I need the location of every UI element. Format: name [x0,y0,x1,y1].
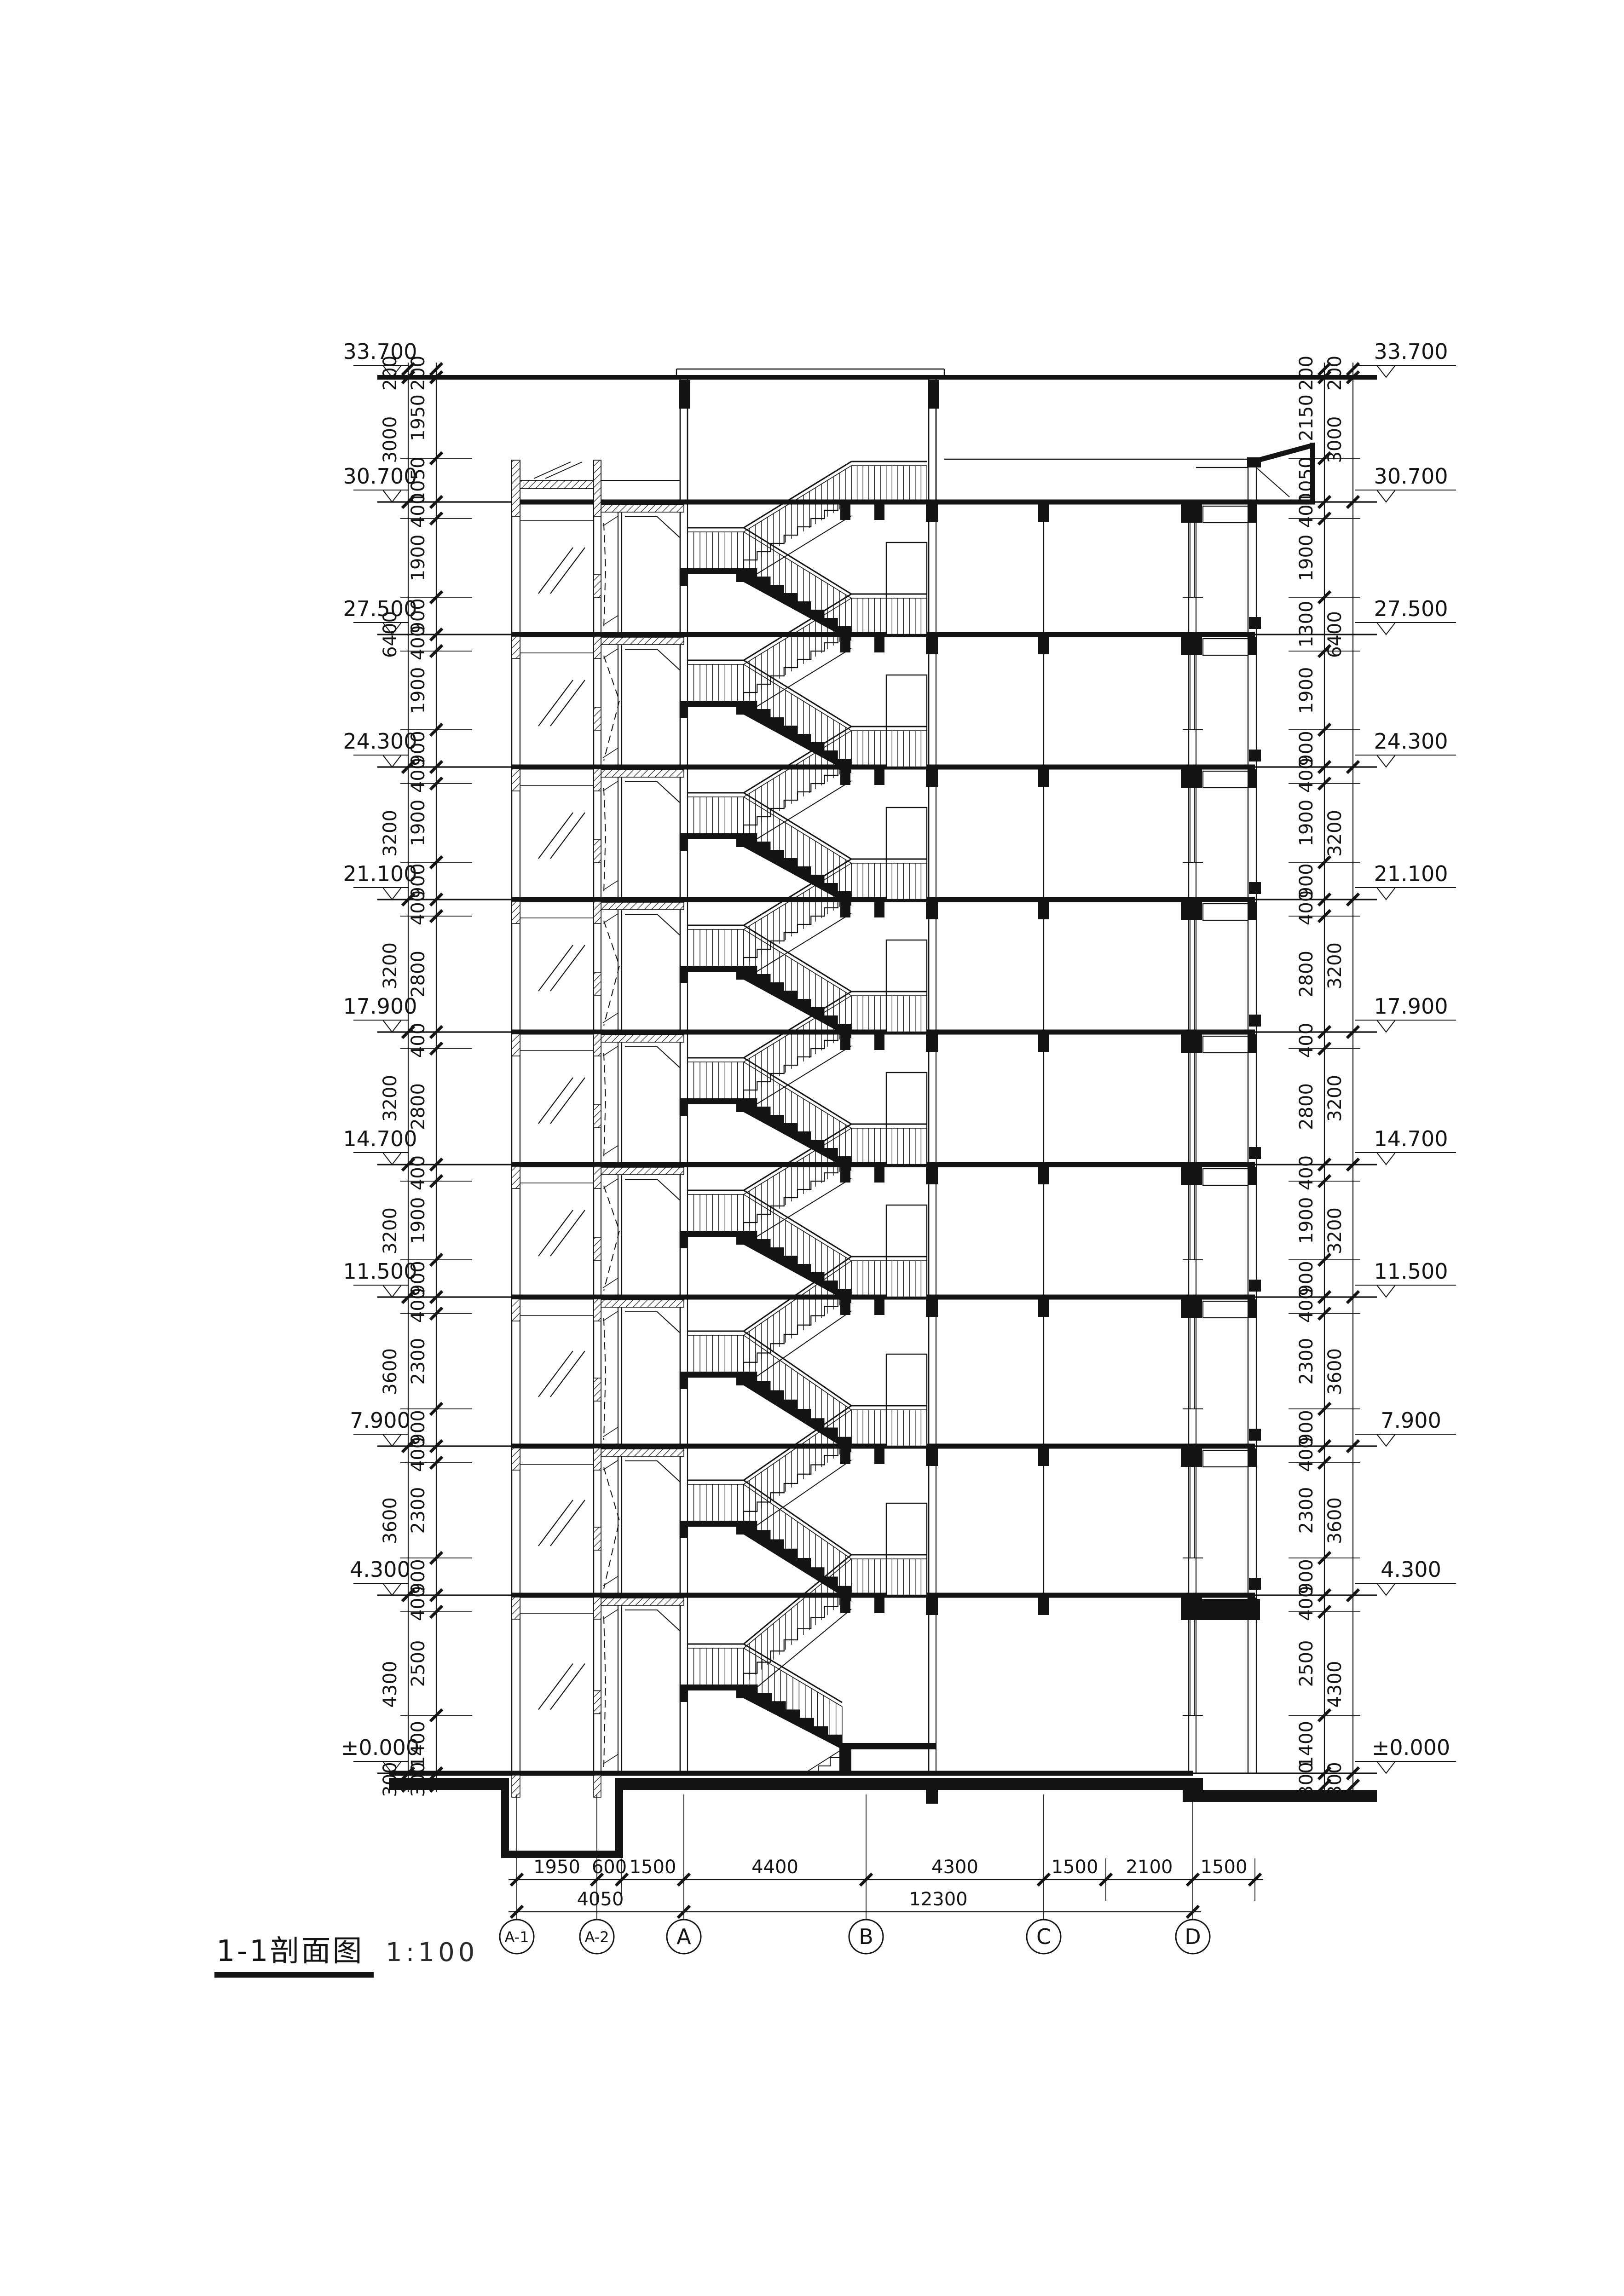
glass-mark [603,516,618,526]
spandrel-hatch [594,1166,601,1188]
spandrel-hatch [512,1166,520,1188]
bulkhead-column [928,380,939,409]
landing-slab-hatch [601,770,684,777]
elevation-label: 33.700 [1374,339,1448,364]
dim-label: 1900 [408,535,429,582]
spandrel-hatch [512,1597,520,1619]
dim-label: 1900 [1296,535,1317,582]
dim-label: 1500 [1201,1857,1248,1878]
mid-landing [680,1231,744,1237]
dim-label: 3200 [1324,1207,1346,1254]
wall-pier [926,504,938,522]
elevation-label: 7.900 [1381,1408,1441,1433]
landing-slab-hatch [601,1167,684,1175]
pit-wall [615,1778,623,1858]
elevation-label: 24.300 [343,729,417,754]
elevation-label: 17.900 [1374,994,1448,1019]
grid-bubble-label: A-2 [584,1928,609,1946]
mid-landing [680,568,744,574]
spandrel-hatch [512,901,520,923]
dim-label: 1900 [408,667,429,714]
dim-label: 400 [408,1155,429,1190]
title-underline [214,1972,374,1978]
elevation-label: 4.300 [1381,1557,1441,1582]
glass-mark [534,462,571,479]
parapet-stub [1249,882,1261,894]
glass-mark [603,1460,618,1470]
spandrel-hatch [594,1237,601,1260]
landing-beam [736,1372,744,1385]
balcony-slab-edge [1203,506,1248,523]
landing-beam [680,966,688,983]
flight-soffit [625,1461,680,1482]
balcony-slab-edge [1203,639,1248,655]
elevator-door-dash [604,1318,606,1440]
edge-lintel [1248,504,1257,523]
dim-label: 2500 [1296,1640,1317,1687]
dim-label: 1950 [533,1857,580,1878]
elevation-triangle [1377,365,1395,377]
edge-lintel [1248,637,1257,655]
beam-stub [874,769,884,785]
glass-mark [603,748,618,758]
parapet-stub [1249,1147,1261,1159]
dim-label: 400 [408,1437,429,1472]
glass-mark [603,781,618,791]
dim-label: 2800 [1296,951,1317,998]
beam-stub [874,1598,884,1613]
spandrel-hatch [594,1105,601,1128]
elevation-label: ±0.000 [341,1735,419,1760]
landing-beam [736,1231,744,1245]
dim-label: 1500 [1052,1857,1098,1878]
landing-beam [736,1098,744,1112]
elevation-triangle [1377,1020,1395,1032]
spandrel-hatch [594,972,601,995]
dim-label: 400 [408,1586,429,1621]
beam-stub [874,637,884,652]
elevator-door-dash [604,921,619,1026]
dim-label: 1900 [408,1197,429,1244]
elevator-door-dash [604,523,606,628]
dim-label: 400 [1296,890,1317,925]
wall-pier [926,1598,938,1615]
landing-slab-hatch [601,1035,684,1042]
window-lintel [1181,1448,1202,1467]
flight-soffit [625,1047,680,1068]
edge-lintel [1248,1448,1257,1467]
beam-stub [1038,1299,1049,1317]
elevation-label: 14.700 [1374,1126,1448,1151]
elevation-label: 30.700 [343,464,417,489]
elevation-triangle [383,888,401,900]
beam-stub [1038,1598,1049,1615]
grid-bubble-label: A-1 [504,1928,529,1946]
window-lintel [1181,902,1202,920]
spandrel-hatch [512,1034,520,1056]
landing-beam [680,1231,688,1248]
flight-soffit [625,517,680,538]
spandrel-hatch [594,901,601,923]
grid-bubble-label: A [676,1924,691,1949]
elevation-label: 27.500 [343,596,417,621]
landing-beam [680,701,688,718]
elevator-door-dash [604,1186,619,1291]
shaft-cap-wall [594,460,601,516]
grid-bubble-label: B [859,1924,873,1949]
wall-pier [926,769,938,787]
beam-stub [874,1448,884,1464]
elevation-label: 27.500 [1374,596,1448,621]
elevation-label: 7.900 [350,1408,410,1433]
flight-soffit [625,649,680,670]
beam-stub [874,1034,884,1050]
title-block: 1-1剖面图 1:100 [214,1934,478,1978]
flight-soffit [625,1610,680,1631]
elevation-triangle [1377,888,1395,900]
dim-label: 400 [408,1288,429,1323]
landing-slab-hatch [601,1449,684,1456]
edge-lintel [1248,902,1257,920]
elevation-label: 4.300 [350,1557,410,1582]
dim-label: 3200 [1324,1075,1346,1122]
balcony-slab-edge [1203,1450,1248,1467]
dim-label: 2800 [1296,1083,1317,1130]
dim-label: 300 [1296,1762,1317,1797]
parapet-stub [1249,750,1261,761]
dim-label: 4300 [931,1857,978,1878]
window-lintel [1181,504,1202,523]
dim-label: 300 [408,1762,429,1797]
elevator-door-dash [604,1467,619,1589]
spandrel-hatch [594,707,601,730]
elevation-triangle [1377,1583,1395,1595]
glass-mark [603,1311,618,1321]
dim-label: 2500 [408,1640,429,1687]
window-lintel [1181,1034,1202,1053]
flight-soffit [625,914,680,935]
elevator-door-dash [604,1053,606,1158]
dim-label: 200 [1296,356,1317,391]
shaft-cap-slab [520,480,594,489]
balcony-slab-edge [1203,1301,1248,1318]
flight-soffit [625,1312,680,1333]
mid-landing [680,833,744,839]
dim-label: 3200 [380,810,401,857]
spandrel-hatch [594,1775,601,1797]
landing-beam [680,568,688,586]
elevation-label: 33.700 [343,339,417,364]
spandrel-hatch [594,1691,601,1714]
window-lintel [1181,1299,1202,1318]
elevation-label: 30.700 [1374,464,1448,489]
mid-landing [680,701,744,707]
glass-mark [603,1754,618,1764]
mid-landing [680,966,744,972]
parapet-corner [1247,457,1261,467]
parapet-stub [1249,1429,1261,1441]
elevation-triangle [383,1020,401,1032]
spandrel-hatch [594,1527,601,1550]
elevation-triangle [1377,1434,1395,1446]
spandrel-hatch [594,1034,601,1056]
glass-mark [603,615,618,625]
dim-label: 3000 [1324,416,1346,463]
dim-label: 400 [1296,1023,1317,1058]
balcony-slab-edge [1203,771,1248,788]
beam-stub [1038,1448,1049,1466]
dim-label: 3600 [380,1497,401,1544]
beam-stub [874,1167,884,1183]
dimension-chains: 2003000640032003200320032003600360043003… [380,356,1360,1918]
dim-label: 1950 [408,394,429,441]
landing-slab-hatch [601,1598,684,1605]
grid-bubble-label: D [1185,1924,1201,1949]
landing-beam [736,1521,744,1535]
dim-label: 1900 [1296,1197,1317,1244]
glass-mark [603,1427,618,1437]
flight-soffit [625,1179,680,1200]
beam-stub [874,1299,884,1315]
canopy-inner [1257,468,1289,497]
dim-label: 2300 [1296,1338,1317,1385]
glass-mark [545,462,582,479]
dim-label: 3200 [1324,942,1346,989]
glass-mark [603,648,618,658]
landing-beam [680,1372,688,1389]
elevation-triangle [383,1434,401,1446]
dim-label: 1300 [1296,601,1317,648]
shaft-cap-wall [512,460,520,516]
edge-lintel [1248,769,1257,788]
elevation-triangle [383,490,401,502]
step-diagonal [804,1748,845,1773]
landing-beam [736,568,744,582]
dim-label: 1500 [630,1857,676,1878]
drawing-title: 1-1剖面图 [216,1934,364,1968]
building-linework [377,369,1377,1858]
parapet-stub [1249,1578,1261,1590]
dim-label: 3200 [1324,810,1346,857]
pit-wall [501,1778,509,1858]
landing-beam [680,1521,688,1538]
landing-slab-hatch [601,902,684,910]
landing-beam [680,1685,688,1702]
spandrel-hatch [594,636,601,658]
parapet-stub [1249,1015,1261,1027]
entry-platform [842,1743,936,1749]
elevation-triangle [383,1153,401,1165]
mid-landing [680,1098,744,1104]
grid-bubble-label: C [1036,1924,1051,1949]
entrance-canopy [1181,1599,1260,1620]
dim-label: 3600 [1324,1348,1346,1395]
landing-beam [736,833,744,847]
spandrel-hatch [594,1597,601,1619]
dim-label: 3600 [380,1348,401,1395]
wall-pier [926,902,938,919]
glass-mark [603,1046,618,1056]
glass-mark [603,1013,618,1023]
dim-label: 2300 [408,1338,429,1385]
ground-slab [615,1778,1193,1790]
dim-label: 3600 [1324,1497,1346,1544]
dim-label: 4300 [1324,1661,1346,1708]
spandrel-hatch [594,1448,601,1470]
beam-stub [1038,1034,1049,1052]
dim-label: 3200 [380,1207,401,1254]
elevator-door-dash [604,656,619,761]
dim-label: 3000 [380,416,401,463]
spandrel-hatch [594,575,601,598]
dim-label: 400 [1296,1437,1317,1472]
spandrel-hatch [512,1448,520,1470]
dim-label: 300 [380,1762,401,1797]
dim-label: 1900 [408,800,429,847]
elevation-label: 11.500 [343,1259,417,1284]
landing-slab-hatch [601,1300,684,1307]
balcony-slab-edge [1203,1169,1248,1185]
dim-label: 2800 [408,1083,429,1130]
wall-pier [926,637,938,654]
dim-label: 2300 [1296,1487,1317,1534]
dim-label: 2150 [1296,394,1317,441]
elevation-triangle [1377,490,1395,502]
landing-slab-hatch [601,505,684,512]
dim-label: 300 [1324,1762,1346,1797]
landing-beam [736,966,744,980]
glass-mark [603,880,618,890]
elevation-label: 24.300 [1374,729,1448,754]
spandrel-hatch [594,769,601,791]
dim-label: 1400 [1296,1721,1317,1768]
dim-label: 400 [1296,493,1317,528]
dim-label: 400 [1296,1155,1317,1190]
elevation-label: ±0.000 [1372,1735,1450,1760]
dim-label: 400 [1296,1288,1317,1323]
mid-landing [680,1685,744,1690]
landing-beam [736,701,744,715]
dim-label: 3200 [380,942,401,989]
dim-label: 4400 [751,1857,798,1878]
spandrel-hatch [594,840,601,863]
bulkhead-column [679,380,690,409]
edge-lintel [1248,1034,1257,1053]
elevation-triangle [1377,1153,1395,1165]
mid-landing [680,1521,744,1527]
elevation-triangle [1377,1761,1395,1773]
spandrel-hatch [512,1775,520,1797]
dim-label: 400 [408,890,429,925]
dim-label: 400 [1296,1586,1317,1621]
dim-label: 400 [408,625,429,660]
beam-stub [1038,902,1049,919]
building-section-drawing: 2003000640032003200320032003600360043003… [0,0,1624,2296]
elevation-triangle [383,1285,401,1297]
glass-mark [603,1278,618,1288]
edge-lintel [1248,1299,1257,1318]
spandrel-hatch [594,1378,601,1401]
dim-label: 400 [1296,758,1317,793]
spandrel-hatch [512,1299,520,1321]
dim-label: 400 [408,1023,429,1058]
elevation-triangle [383,755,401,767]
dim-label: 6400 [1324,611,1346,658]
dim-label: 400 [408,493,429,528]
dim-label: 12300 [909,1889,967,1910]
elevation-label: 11.500 [1374,1259,1448,1284]
glass-mark [603,913,618,923]
glass-mark [603,1145,618,1155]
elevation-label: 21.100 [343,861,417,886]
beam-stub [874,902,884,917]
dim-label: 2800 [408,951,429,998]
wall-pier [926,1167,938,1184]
beam-stub [1038,1167,1049,1184]
spandrel-hatch [512,769,520,791]
elevation-label: 21.100 [1374,861,1448,886]
dim-label: 2100 [1126,1857,1173,1878]
elevator-door-dash [604,1616,606,1767]
drawing-scale: 1:100 [386,1938,478,1967]
wall-pier [926,1448,938,1466]
dim-label: 4050 [577,1889,624,1910]
landing-beam [736,1685,744,1698]
elevation-triangle [383,1583,401,1595]
window-lintel [1181,769,1202,788]
elevation-label: 17.900 [343,994,417,1019]
wall-pier [926,1034,938,1052]
glass-mark [603,1609,618,1619]
balcony-slab-edge [1203,1036,1248,1053]
beam-stub [1038,504,1049,522]
elevation-triangle [1377,1285,1395,1297]
window-lintel [1181,637,1202,655]
glass-mark [603,1178,618,1188]
beam-stub [1038,769,1049,787]
landing-beam [680,1098,688,1116]
beam-stub [874,504,884,520]
dim-label: 200 [1324,356,1346,391]
flight-soffit [625,782,680,803]
dim-label: 1900 [1296,667,1317,714]
elevator-door-dash [604,788,606,893]
balcony-slab-edge [1203,904,1248,920]
spandrel-hatch [594,1299,601,1321]
edge-lintel [1248,1167,1257,1185]
parapet-stub [1249,1280,1261,1292]
landing-slab-hatch [601,637,684,645]
wall-pier [926,1299,938,1317]
beam-stub [1038,637,1049,654]
elevation-label: 14.700 [343,1126,417,1151]
mid-landing [680,1372,744,1378]
dim-label: 2300 [408,1487,429,1534]
dim-label: 1900 [1296,800,1317,847]
exterior-grade-slab [1193,1790,1377,1802]
window-lintel [1181,1167,1202,1185]
glass-mark [603,1576,618,1586]
dim-label: 3200 [380,1075,401,1122]
elevation-triangle [1377,623,1395,635]
landing-beam [680,833,688,851]
elevation-triangle [1377,755,1395,767]
foundation-pier [926,1778,938,1804]
spandrel-hatch [512,636,520,658]
parapet-stub [1249,617,1261,629]
dim-label: 4300 [380,1661,401,1708]
dim-label: 400 [408,758,429,793]
